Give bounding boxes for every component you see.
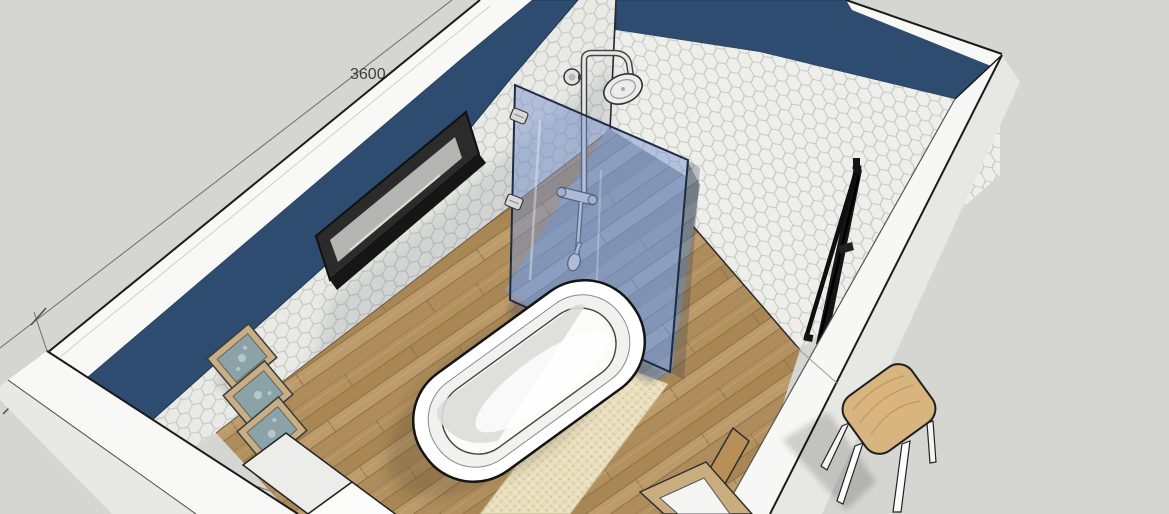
3d-viewport[interactable]: 3600 mm (0, 0, 1169, 514)
scene-canvas: 3600 mm (0, 0, 1169, 514)
